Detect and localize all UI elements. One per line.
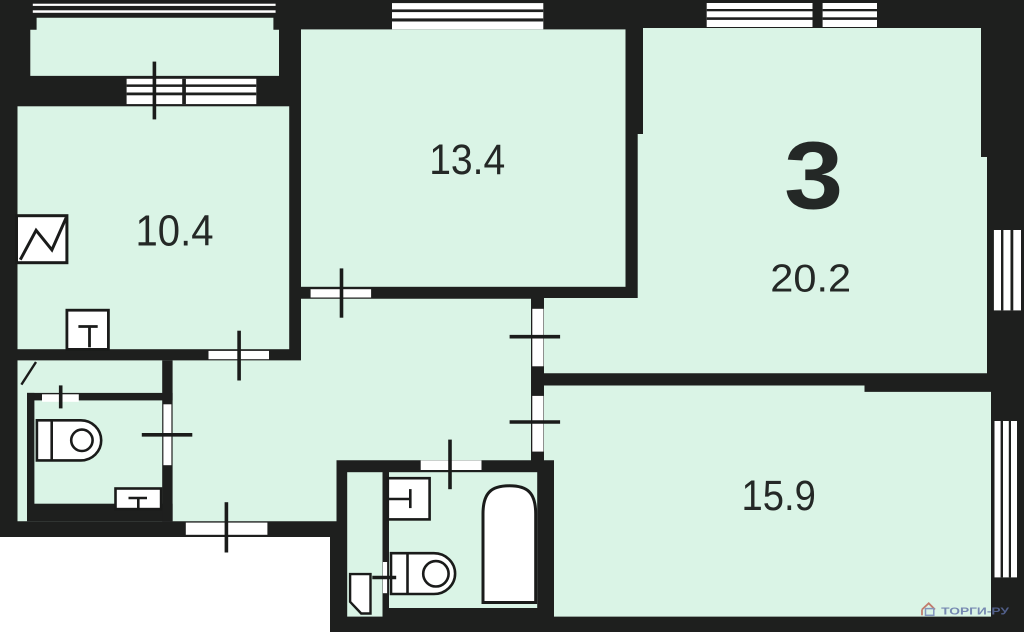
svg-text:10.4: 10.4 bbox=[136, 208, 214, 256]
svg-text:13.4: 13.4 bbox=[429, 136, 505, 183]
svg-text:20.2: 20.2 bbox=[770, 257, 851, 300]
svg-text:ТОРГИ-РУ: ТОРГИ-РУ bbox=[941, 606, 1010, 617]
svg-text:15.9: 15.9 bbox=[742, 472, 816, 519]
svg-text:3: 3 bbox=[784, 123, 843, 230]
